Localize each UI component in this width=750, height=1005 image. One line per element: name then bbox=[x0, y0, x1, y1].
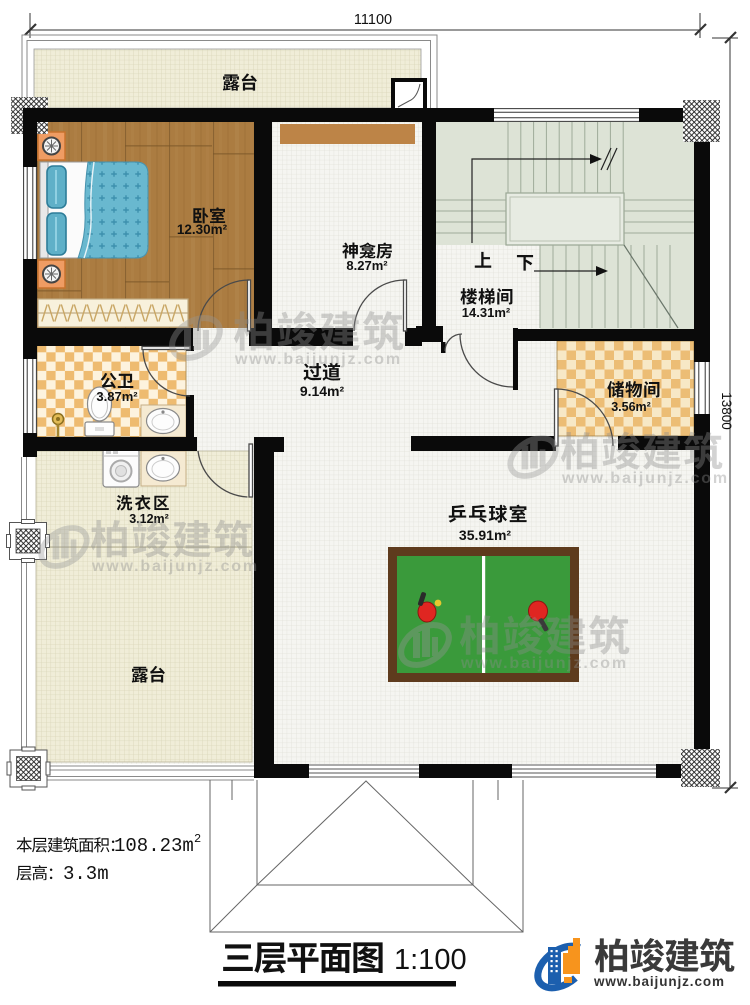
svg-text:9.14m²: 9.14m² bbox=[300, 383, 345, 399]
svg-text:www.baijunjz.com: www.baijunjz.com bbox=[91, 558, 259, 575]
svg-text:2: 2 bbox=[194, 832, 201, 846]
svg-text:13800: 13800 bbox=[719, 392, 734, 430]
svg-text:www.baijunjz.com: www.baijunjz.com bbox=[460, 655, 628, 672]
svg-text:12.30m²: 12.30m² bbox=[177, 222, 228, 237]
svg-text:www.baijunjz.com: www.baijunjz.com bbox=[234, 351, 402, 368]
svg-text:3.3m: 3.3m bbox=[63, 863, 109, 885]
svg-text:11100: 11100 bbox=[354, 12, 392, 28]
svg-text:14.31m²: 14.31m² bbox=[462, 305, 511, 320]
svg-text:3.56m²: 3.56m² bbox=[611, 400, 651, 414]
svg-text:www.baijunjz.com: www.baijunjz.com bbox=[561, 470, 729, 487]
svg-text:35.91m²: 35.91m² bbox=[459, 527, 511, 543]
svg-text:3.87m²: 3.87m² bbox=[96, 389, 138, 404]
svg-text:108.23m: 108.23m bbox=[114, 835, 194, 857]
svg-text:1:100: 1:100 bbox=[394, 944, 467, 976]
svg-text:8.27m²: 8.27m² bbox=[346, 258, 388, 273]
svg-text:www.baijunjz.com: www.baijunjz.com bbox=[593, 974, 725, 989]
